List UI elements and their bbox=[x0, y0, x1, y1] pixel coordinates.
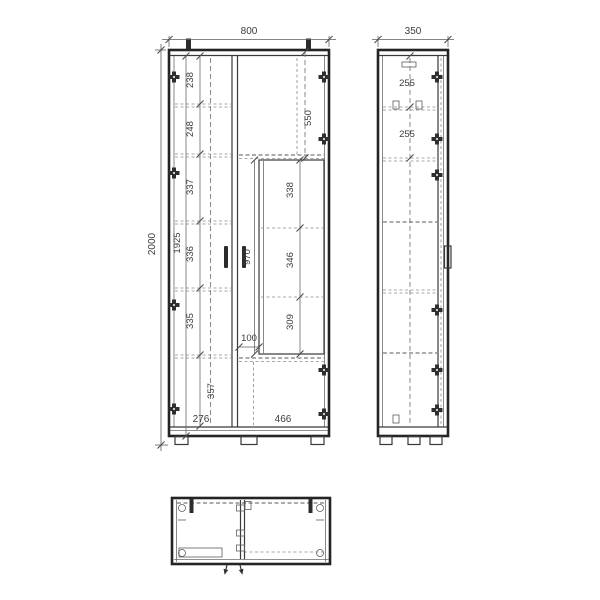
side-carcass-outline bbox=[378, 50, 448, 436]
furniture-dimension-drawing: 800 2000 1925 238 248 337 336 335 357 55… bbox=[0, 0, 600, 600]
dimension-label-niche-section-2: 346 bbox=[285, 252, 296, 268]
foot bbox=[430, 437, 442, 445]
dimension-label-front-width: 800 bbox=[241, 26, 258, 37]
plan-internal-lines bbox=[174, 500, 329, 562]
dimension-label-niche-section-1: 338 bbox=[285, 182, 296, 198]
dimension-label-left-width: 276 bbox=[193, 414, 210, 425]
front-right-compartment bbox=[236, 49, 325, 426]
dimension-label-front-height: 2000 bbox=[147, 232, 158, 255]
dimension-label-left-section-1: 238 bbox=[185, 72, 196, 88]
front-carcass-outline bbox=[169, 50, 329, 436]
door-swing-arrow-icon bbox=[222, 564, 229, 575]
technical-drawing-canvas: 800 2000 1925 238 248 337 336 335 357 55… bbox=[0, 0, 600, 600]
foot bbox=[241, 437, 257, 445]
dimension-label-niche-gap: 100 bbox=[241, 333, 257, 344]
front-left-compartment bbox=[175, 53, 231, 440]
mount-bracket-icon bbox=[306, 39, 311, 50]
mount-bracket-icon bbox=[186, 39, 191, 50]
dimension-label-niche-section-3: 309 bbox=[285, 314, 296, 330]
side-hinges bbox=[432, 72, 443, 416]
door-handle bbox=[224, 246, 228, 268]
mount-bracket-icon bbox=[190, 499, 194, 513]
side-depth-dimension bbox=[372, 36, 454, 47]
dimension-label-right-width: 466 bbox=[275, 414, 292, 425]
plan-corner-fittings bbox=[178, 505, 324, 557]
foot bbox=[408, 437, 420, 445]
dimension-label-left-section-5: 335 bbox=[185, 313, 196, 329]
dimension-label-left-section-2: 248 bbox=[185, 121, 196, 137]
dimension-label-left-section-3: 337 bbox=[185, 179, 196, 195]
dimension-label-side-section-2: 255 bbox=[399, 129, 415, 140]
foot bbox=[380, 437, 392, 445]
dimension-label-left-section-4: 336 bbox=[185, 246, 196, 262]
dimension-label-side-section-1: 255 bbox=[399, 78, 415, 89]
front-partition bbox=[232, 56, 238, 427]
side-internal-lines bbox=[383, 53, 437, 426]
door-swing-arrow-icon bbox=[238, 564, 245, 575]
dimension-label-plinth: 357 bbox=[206, 383, 217, 399]
foot bbox=[175, 437, 188, 445]
dimension-label-top-door: 550 bbox=[303, 110, 314, 126]
dimension-label-side-depth: 350 bbox=[405, 26, 422, 37]
front-view: 800 2000 1925 238 248 337 336 335 357 55… bbox=[147, 26, 336, 451]
foot bbox=[311, 437, 324, 445]
mount-bracket-icon bbox=[309, 499, 313, 513]
top-view bbox=[172, 498, 330, 575]
hinge-icon bbox=[432, 170, 443, 181]
side-view: 350 255 255 bbox=[372, 26, 454, 445]
dimension-label-interior-height: 1925 bbox=[172, 232, 183, 253]
dimension-label-niche-height: 970 bbox=[242, 249, 253, 265]
